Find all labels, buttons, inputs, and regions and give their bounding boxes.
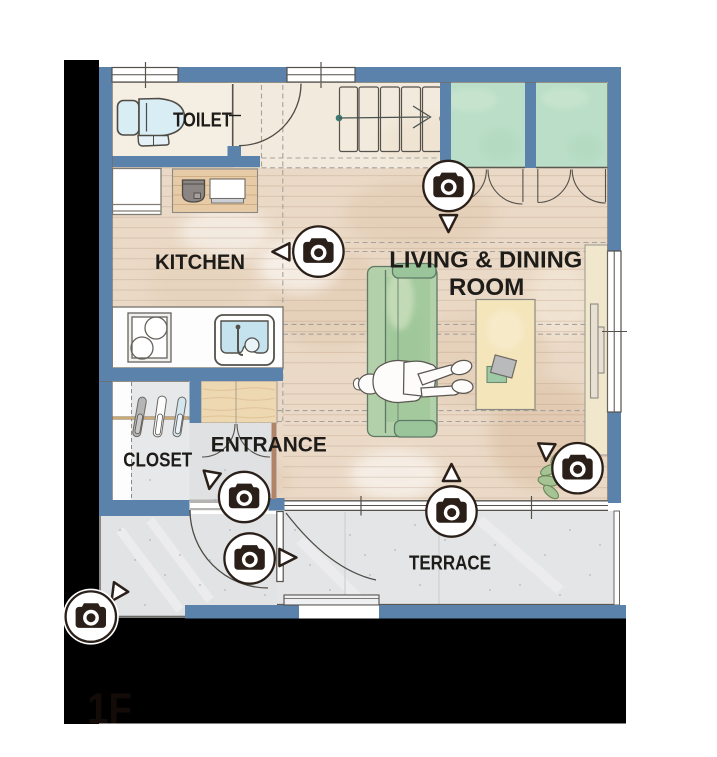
svg-text:1F: 1F — [87, 685, 132, 734]
svg-text:TERRACE: TERRACE — [409, 553, 491, 575]
svg-text:LIVING & DINING: LIVING & DINING — [389, 246, 582, 272]
svg-text:CLOSET: CLOSET — [123, 450, 192, 472]
svg-text:TOILET: TOILET — [173, 108, 232, 131]
svg-text:ENTRANCE: ENTRANCE — [211, 432, 327, 456]
svg-text:KITCHEN: KITCHEN — [155, 251, 245, 274]
svg-text:ROOM: ROOM — [449, 274, 525, 301]
